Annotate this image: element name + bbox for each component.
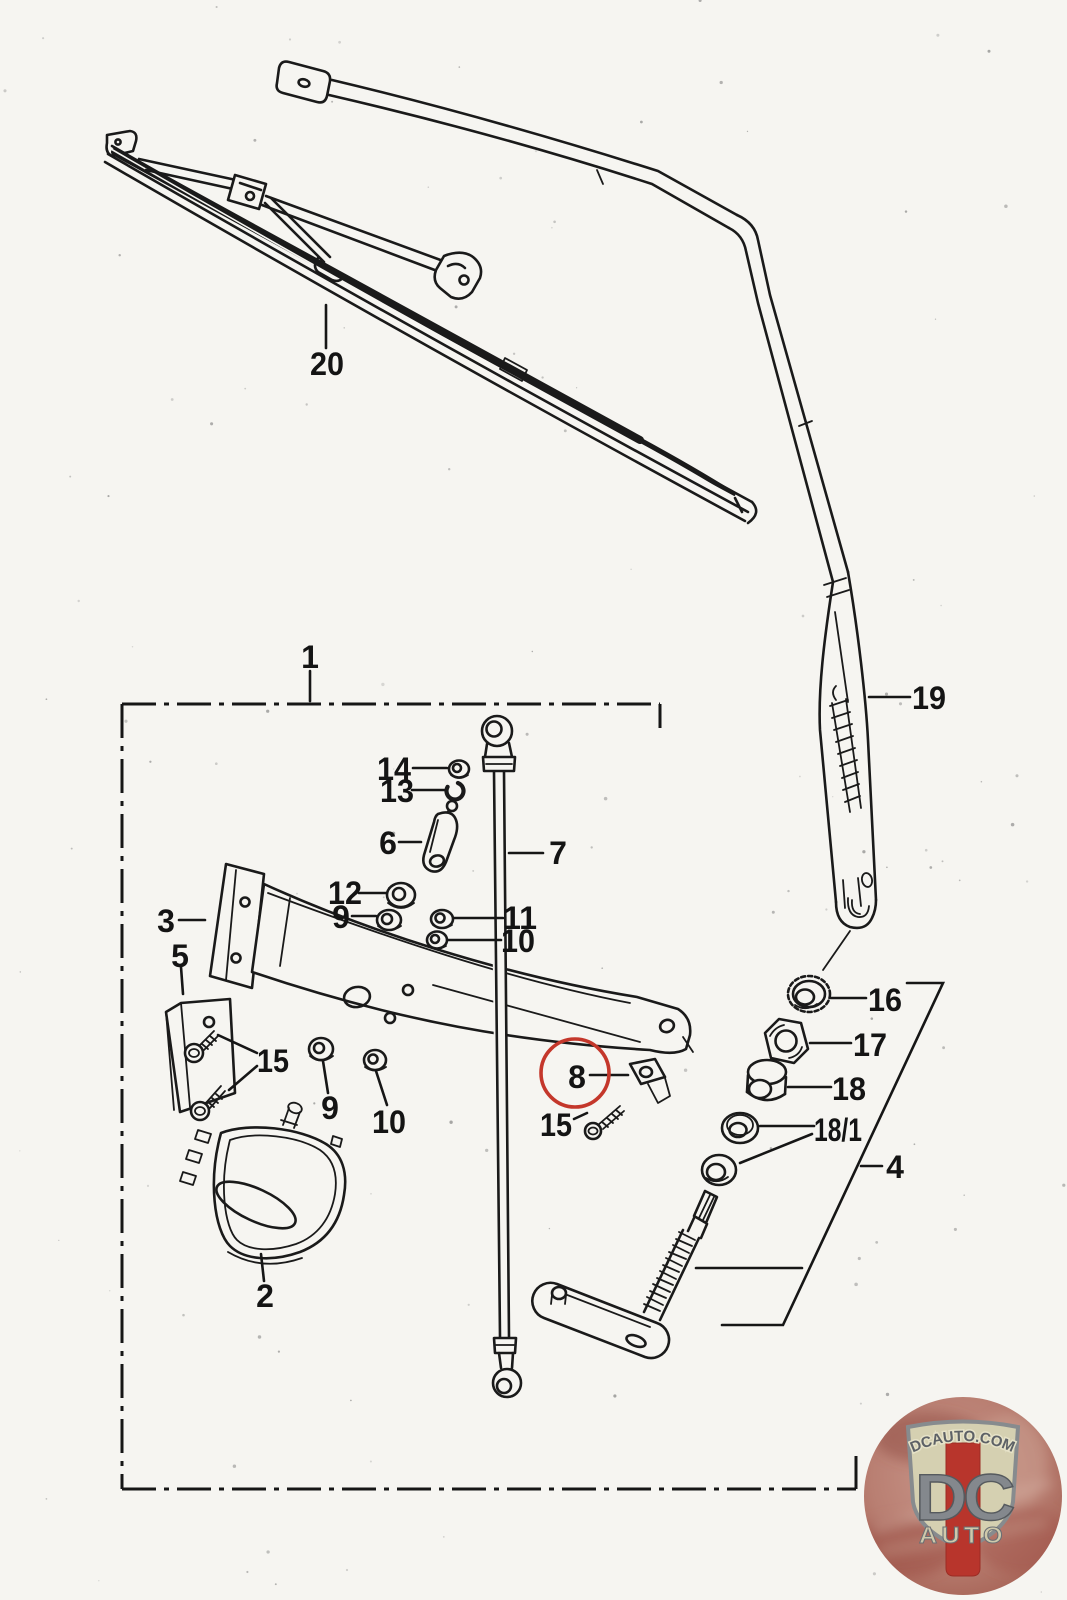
logo-word-auto: AUTO: [919, 1522, 1007, 1548]
parts-diagram-page: 20 19 1 14 13 6 7 3 12 9 11 10 5 15 9 10…: [0, 0, 1067, 1600]
bushing-18-drawing: [747, 1060, 786, 1100]
washer-9-lower-drawing: [309, 1038, 333, 1061]
part-label-15-right: 15: [540, 1107, 572, 1143]
wiper-blade-drawing: [105, 131, 756, 523]
nut-11-drawing: [431, 910, 453, 928]
seal-rings-18-1-drawing: [702, 1113, 758, 1185]
screw-15-right-drawing: [585, 1106, 624, 1139]
pivot-shaft-crank-drawing: [532, 1191, 717, 1358]
bracket-4: [722, 983, 943, 1325]
crank-clamp-6-drawing: [423, 801, 457, 872]
part-label-5: 5: [171, 938, 189, 974]
part-label-17: 17: [853, 1027, 887, 1063]
part-label-3: 3: [157, 903, 175, 939]
part-label-19: 19: [912, 680, 946, 716]
lock-ring-13-drawing: [446, 783, 463, 799]
washer-10-upper-drawing: [427, 932, 447, 949]
hex-nut-17-drawing: [765, 1019, 808, 1063]
part-label-9-upper: 9: [332, 899, 350, 935]
clip-8-drawing: [630, 1059, 670, 1103]
part-label-1: 1: [301, 639, 319, 675]
nut-14-drawing: [449, 761, 469, 779]
dcauto-logo: DCAUTO.COM DCAUTO.COM DC AUTO: [842, 1397, 1067, 1595]
part-label-16: 16: [868, 982, 902, 1018]
photocopy-speckles: [3, 0, 1065, 1593]
diagram-canvas: 20 19 1 14 13 6 7 3 12 9 11 10 5 15 9 10…: [0, 0, 1067, 1600]
linkage-rod-drawing: [482, 716, 521, 1397]
part-label-15-left: 15: [257, 1043, 289, 1079]
part-label-18-1: 18/1: [814, 1112, 862, 1148]
part-label-10-upper: 10: [501, 923, 535, 959]
leader-9-lower: [323, 1061, 328, 1093]
wiper-arm-drawing: [277, 62, 876, 970]
part-label-10-lower: 10: [372, 1104, 406, 1140]
mounting-frame-drawing: [210, 864, 693, 1053]
part-label-18: 18: [832, 1071, 866, 1107]
washer-9-upper-drawing: [377, 910, 401, 930]
part-label-4: 4: [886, 1149, 904, 1185]
washer-10-lower-drawing: [364, 1050, 386, 1071]
flange-nut-16-drawing: [788, 976, 830, 1012]
part-label-6: 6: [379, 825, 397, 861]
part-label-13: 13: [380, 773, 414, 809]
part-label-8: 8: [568, 1059, 586, 1095]
nut-12-drawing: [387, 883, 415, 908]
leader-10-lower: [376, 1071, 387, 1105]
part-label-2: 2: [256, 1278, 274, 1314]
assembly-box-border: [122, 704, 856, 1489]
part-label-9-lower: 9: [321, 1090, 339, 1126]
leader-15-right: [574, 1113, 587, 1119]
part-label-20: 20: [310, 346, 344, 382]
part-label-7: 7: [549, 835, 567, 871]
